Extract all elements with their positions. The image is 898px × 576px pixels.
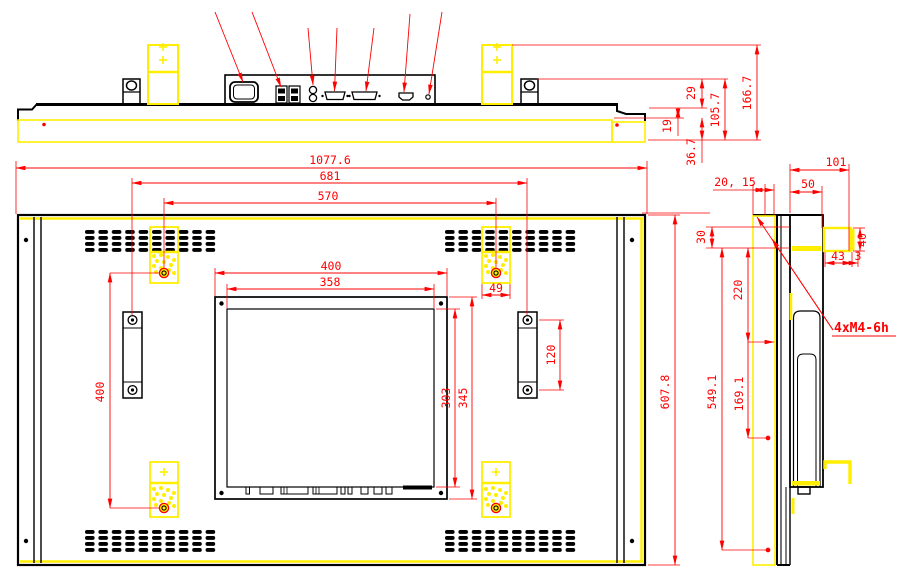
vent-grille-bottom-right [445, 530, 579, 552]
corner-screw [630, 238, 634, 242]
dim-120: 120 [544, 345, 558, 366]
hdmi-connector [399, 93, 413, 100]
wall-hook-bracket [825, 462, 850, 484]
dc-jack [426, 95, 430, 99]
vent-grille-bottom-left [85, 530, 219, 552]
top-chassis-right-step [617, 105, 645, 121]
dim-400-height: 400 [93, 382, 107, 403]
handle-screw [523, 316, 532, 325]
dim-40: 40 [855, 233, 869, 247]
dim-105-7: 105.7 [708, 93, 722, 128]
mount-bracket-section [824, 228, 851, 251]
ref-point-right [615, 123, 619, 127]
dim-549-1: 549.1 [705, 375, 719, 410]
dim-169-1: 169.1 [732, 377, 746, 412]
bracket-bottom-left [150, 462, 178, 517]
box-screw [219, 301, 223, 305]
ref-point-left [42, 123, 46, 127]
corner-screw [630, 539, 634, 543]
bracket-section-strip [790, 293, 793, 320]
audio-jacks [309, 86, 316, 101]
top-view: 29 105.7 166.7 19 36.7 [18, 12, 761, 166]
top-bracket-right-yellow [482, 43, 512, 104]
drawing-canvas: 29 105.7 166.7 19 36.7 [0, 0, 898, 576]
box-screw [439, 301, 443, 305]
box-screw [439, 491, 443, 495]
dim-20-15: 20, 15 [714, 175, 756, 189]
hook-strip-lower [792, 498, 795, 514]
handle-screw [128, 316, 137, 325]
side-chassis [790, 215, 823, 487]
dim-49: 49 [489, 281, 503, 295]
cross-mark [160, 468, 168, 476]
dim-30: 30 [694, 230, 708, 244]
dim-29: 29 [684, 86, 698, 100]
cross-mark [159, 56, 167, 64]
handle-left [123, 312, 142, 398]
vent-grille-top-right [445, 230, 579, 252]
corner-screw [24, 238, 28, 242]
dim-166-7: 166.7 [740, 76, 754, 111]
front-bezel-strip [18, 120, 612, 142]
box-screw [219, 491, 223, 495]
handle-screw [128, 386, 137, 395]
mount-hole [491, 268, 500, 277]
cross-mark [492, 468, 500, 476]
dim-19: 19 [660, 119, 674, 133]
power-inlet-inner [234, 85, 255, 99]
dim-1077-6: 1077.6 [309, 153, 351, 167]
mount-thread-label: 4xM4-6h [834, 321, 889, 336]
dim-101: 101 [826, 155, 847, 169]
mount-hole [159, 268, 168, 277]
top-hole-bracket-left [123, 79, 140, 104]
mount-hole [159, 503, 168, 512]
dim-400-width: 400 [321, 259, 342, 273]
handle-right [518, 312, 537, 398]
side-view: 101 50 20, 15 30 549.1 220 169.1 [642, 155, 896, 565]
dim-50: 50 [801, 177, 815, 191]
rear-view: 1077.6 681 570 400 358 49 120 [16, 153, 680, 565]
top-chassis-left-step [18, 104, 37, 121]
hook-strip [792, 481, 820, 486]
corner-screw [24, 539, 28, 543]
dim-220: 220 [731, 280, 745, 301]
dim-358: 358 [320, 275, 341, 289]
vga-connector [321, 92, 348, 100]
center-mount-box [215, 297, 447, 499]
mount-hole-icon [127, 81, 137, 90]
dim-681: 681 [320, 169, 341, 183]
dim-345: 345 [456, 388, 470, 409]
mount-bracket-plate [849, 229, 855, 251]
back-cover-contour-inner [798, 354, 817, 487]
cross-mark [493, 56, 501, 64]
dim-303: 303 [439, 388, 453, 409]
top-hole-bracket-right [521, 79, 538, 104]
chassis-foot-tab [798, 487, 810, 494]
dim-43: 43 [831, 249, 845, 263]
dimension-drawing: 29 105.7 166.7 19 36.7 [0, 0, 898, 576]
handle-screw [523, 386, 532, 395]
bracket-section-strip [792, 246, 821, 251]
side-front-bezel [753, 216, 775, 565]
usb-ports [276, 86, 300, 103]
mount-hole [491, 503, 500, 512]
dvi-connector [348, 92, 380, 100]
mount-hole-icon [525, 81, 535, 90]
vent-grille-top-left [85, 230, 219, 252]
top-bracket-left-yellow [148, 43, 178, 104]
bracket-bottom-right [482, 462, 510, 517]
io-panel [225, 75, 435, 104]
dim-36-7: 36.7 [684, 138, 698, 166]
dim-570: 570 [318, 189, 339, 203]
dim-607-8: 607.8 [658, 375, 672, 410]
